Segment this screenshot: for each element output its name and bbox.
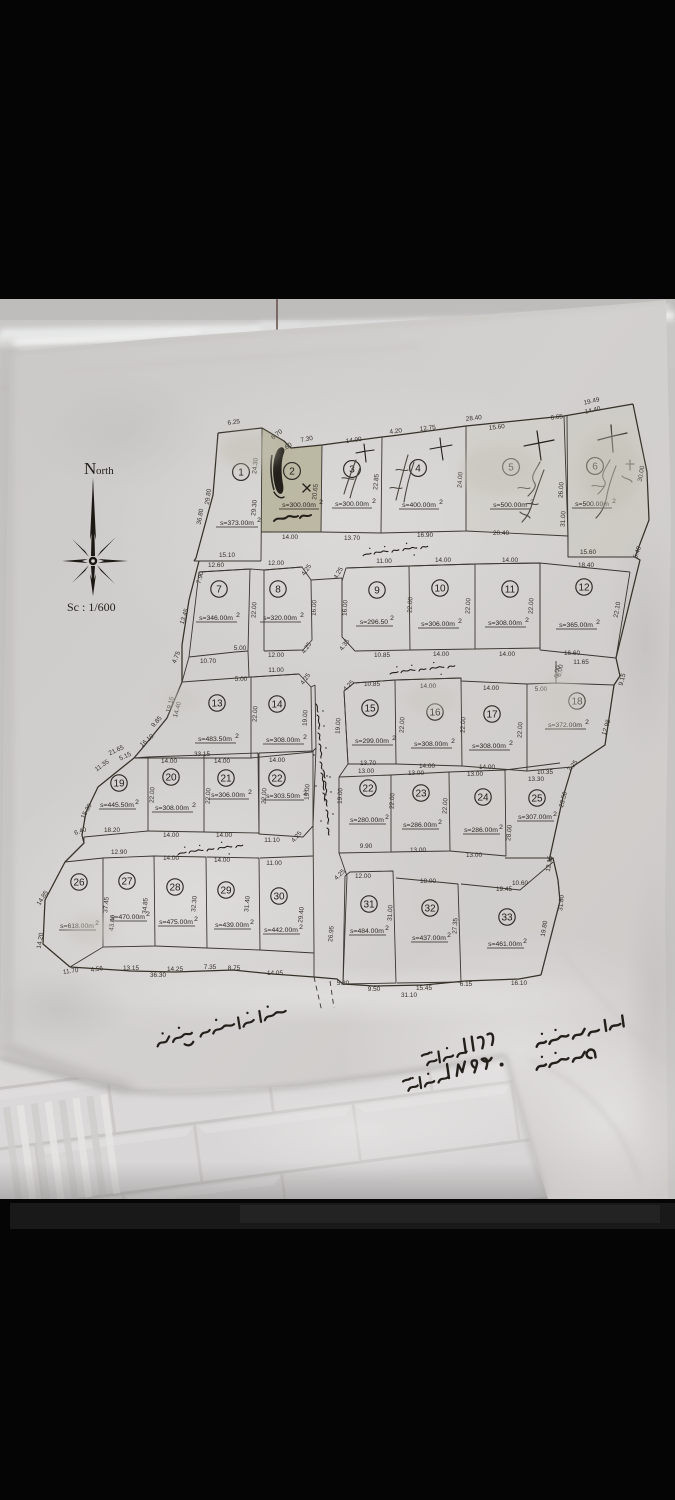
svg-text:13.00: 13.00 (466, 852, 482, 859)
svg-text:14.00: 14.00 (216, 832, 232, 839)
svg-text:19: 19 (113, 779, 125, 790)
svg-text:22.85: 22.85 (372, 473, 380, 490)
svg-text:2: 2 (451, 738, 455, 745)
svg-text:20: 20 (165, 773, 177, 784)
svg-text:31.40: 31.40 (243, 895, 251, 912)
svg-text:5.00: 5.00 (235, 676, 248, 683)
svg-text:22.00: 22.00 (528, 597, 536, 614)
svg-text:19.00: 19.00 (302, 709, 310, 726)
svg-text:s=442.00m: s=442.00m (264, 927, 298, 934)
svg-text:16.90: 16.90 (417, 532, 433, 539)
svg-text:30: 30 (273, 892, 285, 903)
svg-text:14.00: 14.00 (269, 757, 285, 764)
svg-text:14: 14 (271, 700, 283, 711)
svg-text:2: 2 (385, 814, 389, 821)
svg-text:s=320.00m: s=320.00m (263, 615, 297, 622)
svg-text:2: 2 (385, 925, 389, 932)
svg-text:14.00: 14.00 (483, 685, 499, 692)
svg-text:27: 27 (121, 877, 133, 888)
svg-text:18.00: 18.00 (420, 878, 436, 885)
svg-text:9.90: 9.90 (360, 843, 373, 850)
svg-text:4: 4 (415, 464, 421, 475)
svg-text:s=303.50m: s=303.50m (266, 793, 300, 800)
svg-text:14.00: 14.00 (435, 557, 451, 564)
svg-text:10.85: 10.85 (374, 652, 390, 659)
svg-text:s=308.00m: s=308.00m (155, 805, 189, 812)
svg-text:s=300.00m: s=300.00m (335, 501, 369, 508)
svg-text:14.00: 14.00 (282, 534, 298, 541)
svg-text:2: 2 (300, 612, 304, 619)
svg-text:26.00: 26.00 (558, 481, 566, 498)
svg-text:s=299.00m: s=299.00m (355, 738, 389, 745)
svg-text:10.60: 10.60 (512, 880, 528, 887)
svg-text:22.00: 22.00 (389, 792, 397, 809)
svg-text:2: 2 (299, 924, 303, 931)
svg-text:14.00: 14.00 (479, 764, 495, 771)
svg-text:s=280.00m: s=280.00m (350, 817, 384, 824)
svg-text:21: 21 (220, 774, 232, 785)
svg-text:22.00: 22.00 (252, 705, 260, 722)
svg-text:22.00: 22.00 (149, 786, 157, 803)
svg-text:s=308.00m: s=308.00m (266, 737, 300, 744)
svg-text:2: 2 (553, 811, 557, 818)
svg-text:16.00: 16.00 (311, 599, 319, 616)
svg-text:29.30: 29.30 (250, 499, 258, 516)
svg-text:22: 22 (271, 774, 283, 785)
svg-text:31.00: 31.00 (560, 510, 568, 527)
svg-text:33: 33 (501, 913, 513, 924)
svg-text:orth: orth (96, 465, 114, 477)
svg-text:22: 22 (362, 784, 374, 795)
svg-text:12.60: 12.60 (208, 562, 224, 569)
svg-text:2: 2 (319, 499, 323, 506)
svg-text:37.45: 37.45 (102, 896, 110, 913)
svg-text:2: 2 (236, 612, 240, 619)
svg-text:2: 2 (235, 733, 239, 740)
svg-text:5.00: 5.00 (234, 645, 247, 652)
svg-text:17: 17 (486, 710, 498, 721)
svg-text:14.00: 14.00 (502, 557, 518, 564)
svg-text:31.80: 31.80 (557, 894, 565, 911)
svg-text:Sc : 1/600: Sc : 1/600 (67, 600, 116, 614)
svg-text:18.20: 18.20 (104, 827, 120, 834)
svg-text:s=373.00m: s=373.00m (220, 520, 254, 527)
svg-text:31.10: 31.10 (401, 992, 417, 999)
svg-text:s=308.00m: s=308.00m (472, 743, 506, 750)
svg-text:s=484.00m: s=484.00m (350, 928, 384, 935)
svg-text:2: 2 (194, 916, 198, 923)
svg-text:19.45: 19.45 (496, 886, 512, 893)
svg-text:11.00: 11.00 (376, 558, 392, 565)
svg-text:10.85: 10.85 (364, 681, 380, 688)
svg-text:19.00: 19.00 (335, 717, 343, 734)
svg-text:2: 2 (447, 932, 451, 939)
svg-text:28.00: 28.00 (505, 824, 513, 841)
svg-text:13: 13 (211, 699, 223, 710)
svg-text:2: 2 (289, 467, 295, 478)
svg-text:14.00: 14.00 (163, 832, 179, 839)
svg-text:15.60: 15.60 (580, 549, 596, 556)
svg-text:11.65: 11.65 (573, 659, 589, 666)
svg-text:25: 25 (531, 794, 543, 805)
svg-text:22.00: 22.00 (442, 797, 450, 814)
svg-text:s=437.00m: s=437.00m (412, 935, 446, 942)
svg-text:18.40: 18.40 (578, 562, 594, 569)
svg-text:36.30: 36.30 (150, 972, 166, 979)
svg-text:19.00: 19.00 (304, 783, 312, 800)
svg-text:2: 2 (596, 619, 600, 626)
svg-text:6.15: 6.15 (460, 981, 473, 988)
svg-text:2: 2 (390, 615, 394, 622)
svg-text:2: 2 (392, 735, 396, 742)
svg-text:14.25: 14.25 (167, 966, 183, 973)
svg-text:13.00: 13.00 (410, 847, 426, 854)
svg-text:9.50: 9.50 (368, 986, 381, 993)
svg-text:2: 2 (372, 498, 376, 505)
svg-text:s=306.00m: s=306.00m (421, 621, 455, 628)
svg-text:22.00: 22.00 (460, 716, 468, 733)
svg-text:2: 2 (250, 919, 254, 926)
svg-text:12: 12 (578, 583, 590, 594)
svg-text:13.30: 13.30 (528, 776, 544, 783)
svg-text:8.75: 8.75 (228, 965, 241, 972)
svg-text:s=308.00m: s=308.00m (488, 620, 522, 627)
svg-text:9: 9 (374, 586, 380, 597)
svg-text:24: 24 (477, 793, 489, 804)
svg-text:13.15: 13.15 (123, 965, 139, 972)
svg-text:26.95: 26.95 (327, 925, 335, 942)
svg-text:28: 28 (169, 883, 181, 894)
svg-text:s=286.00m: s=286.00m (464, 827, 498, 834)
svg-text:32: 32 (424, 904, 436, 915)
svg-text:29: 29 (220, 886, 232, 897)
svg-text:N: N (84, 459, 96, 478)
svg-text:15.10: 15.10 (219, 552, 235, 559)
svg-text:22.00: 22.00 (251, 601, 259, 618)
svg-text:s=500.00m: s=500.00m (493, 502, 527, 509)
svg-text:11.00: 11.00 (266, 860, 282, 867)
svg-text:15: 15 (364, 704, 376, 715)
svg-text:2: 2 (523, 938, 527, 945)
svg-text:s=307.00m: s=307.00m (518, 814, 552, 821)
svg-text:1: 1 (238, 468, 244, 479)
svg-text:20.40: 20.40 (493, 530, 509, 537)
svg-text:s=308.00m: s=308.00m (414, 741, 448, 748)
svg-text:8: 8 (275, 585, 281, 596)
svg-text:31.00: 31.00 (387, 904, 395, 921)
svg-text:11.00: 11.00 (268, 667, 284, 674)
svg-text:s=286.00m: s=286.00m (403, 822, 437, 829)
svg-text:13.70: 13.70 (360, 760, 376, 767)
svg-text:s=461.00m: s=461.00m (488, 941, 522, 948)
svg-text:14.00: 14.00 (499, 651, 515, 658)
svg-text:2: 2 (458, 618, 462, 625)
svg-text:22.00: 22.00 (407, 596, 415, 613)
svg-text:16.60: 16.60 (564, 650, 580, 657)
svg-text:22.00: 22.00 (261, 787, 269, 804)
svg-text:31: 31 (363, 900, 375, 911)
svg-text:s=365.00m: s=365.00m (559, 622, 593, 629)
svg-text:34.85: 34.85 (141, 897, 149, 914)
svg-text:29.40: 29.40 (297, 906, 305, 923)
svg-text:2: 2 (499, 824, 503, 831)
svg-text:22.00: 22.00 (517, 721, 525, 738)
svg-text:s=296.50: s=296.50 (360, 619, 388, 626)
svg-text:s=445.50m: s=445.50m (100, 802, 134, 809)
svg-text:14.00: 14.00 (214, 857, 230, 864)
svg-text:12.00: 12.00 (268, 652, 284, 659)
svg-text:7: 7 (216, 585, 222, 596)
svg-text:10: 10 (434, 584, 446, 595)
svg-text:32.30: 32.30 (190, 895, 198, 912)
svg-text:12.90: 12.90 (111, 849, 127, 856)
svg-text:11.10: 11.10 (264, 837, 280, 844)
svg-text:10.70: 10.70 (200, 658, 216, 665)
svg-text:s=400.00m: s=400.00m (402, 502, 436, 509)
svg-text:14.00: 14.00 (419, 763, 435, 770)
svg-text:12.00: 12.00 (268, 560, 284, 567)
svg-text:14.00: 14.00 (433, 651, 449, 658)
svg-text:7.35: 7.35 (204, 964, 217, 971)
svg-text:s=483.50m: s=483.50m (198, 736, 232, 743)
svg-text:23: 23 (415, 789, 427, 800)
svg-text:13.00: 13.00 (467, 771, 483, 778)
svg-text:10.35: 10.35 (537, 769, 553, 776)
svg-text:2: 2 (257, 517, 261, 524)
svg-text:14.00: 14.00 (161, 758, 177, 765)
svg-text:2: 2 (438, 819, 442, 826)
svg-text:2: 2 (525, 617, 529, 624)
svg-text:14.00: 14.00 (163, 855, 179, 862)
svg-text:2: 2 (192, 802, 196, 809)
svg-text:s=475.00m: s=475.00m (159, 919, 193, 926)
svg-text:2: 2 (303, 734, 307, 741)
svg-text:s=300.00m: s=300.00m (282, 502, 316, 509)
svg-text:2: 2 (585, 719, 589, 726)
svg-text:15.45: 15.45 (416, 985, 432, 992)
svg-text:16.10: 16.10 (511, 980, 527, 987)
svg-text:22.00: 22.00 (399, 716, 407, 733)
svg-text:27.35: 27.35 (452, 917, 460, 934)
svg-text:19.00: 19.00 (337, 787, 345, 804)
svg-text:22.00: 22.00 (205, 787, 213, 804)
svg-text:2: 2 (248, 789, 252, 796)
svg-text:14.05: 14.05 (267, 970, 283, 977)
svg-text:s=306.00m: s=306.00m (211, 792, 245, 799)
svg-text:s=439.00m: s=439.00m (215, 922, 249, 929)
svg-text:2: 2 (135, 799, 139, 806)
svg-text:22.00: 22.00 (465, 597, 473, 614)
svg-text:s=346.00m: s=346.00m (199, 615, 233, 622)
svg-text:14.00: 14.00 (214, 758, 230, 765)
svg-text:13.70: 13.70 (344, 535, 360, 542)
svg-text:11: 11 (505, 585, 516, 596)
svg-text:2: 2 (509, 740, 513, 747)
svg-text:16.00: 16.00 (342, 599, 350, 616)
svg-text:2: 2 (439, 499, 443, 506)
svg-text:26: 26 (73, 878, 85, 889)
svg-text:12.00: 12.00 (355, 873, 371, 880)
svg-text:13.00: 13.00 (358, 768, 374, 775)
